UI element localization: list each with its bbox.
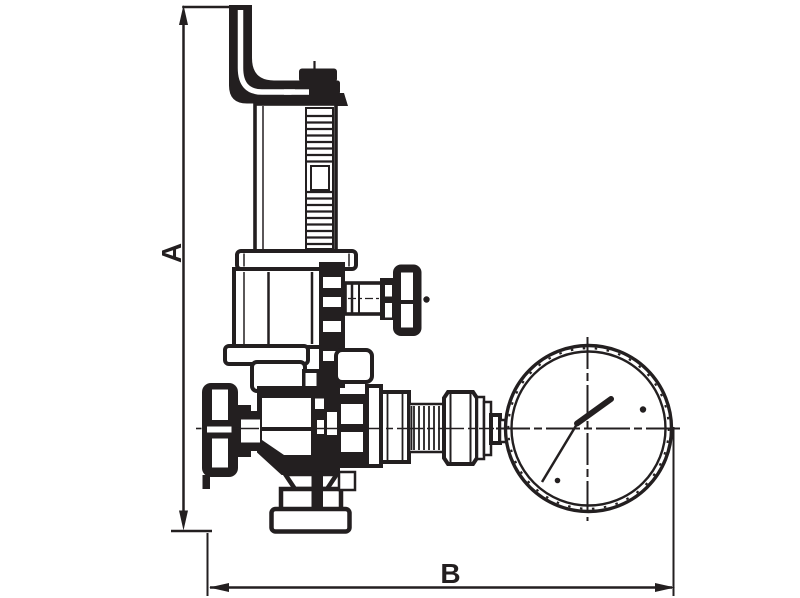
svg-text:A: A [156,243,187,263]
svg-text:B: B [440,558,460,589]
